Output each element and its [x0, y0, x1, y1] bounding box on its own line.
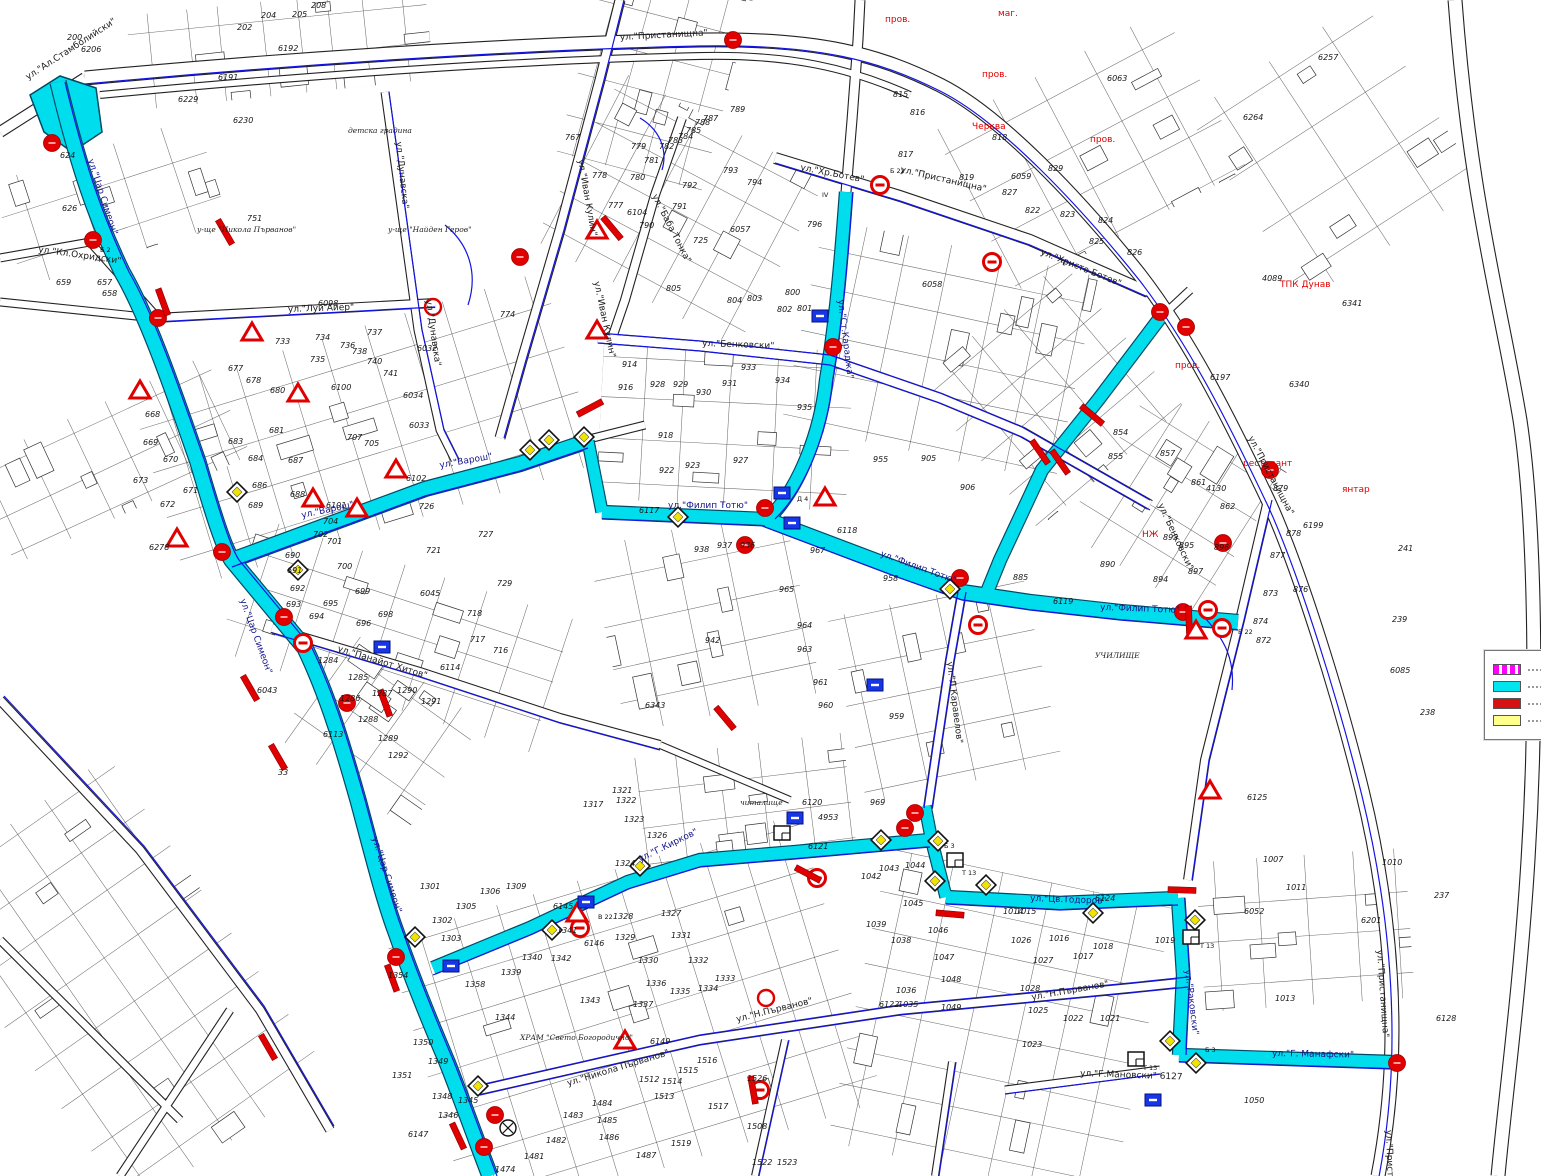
- parcel-number: 890: [1100, 560, 1115, 569]
- parcel-number: 6147: [408, 1130, 429, 1139]
- parcel-number: 1289: [378, 734, 398, 743]
- parcel-number: 1045: [903, 899, 923, 908]
- parcel-number: 1345: [458, 1096, 478, 1105]
- parcel-number: 6201: [1361, 916, 1381, 925]
- hydrant-node-mark: [1183, 326, 1190, 328]
- parcel-number: 1326: [647, 831, 667, 840]
- map-legend: [1484, 650, 1541, 740]
- parcel-number: 1036: [896, 986, 916, 995]
- parcel-number: 1284: [318, 656, 338, 665]
- parcel-number: 1354: [388, 971, 408, 980]
- parcel-number: 725: [693, 236, 708, 245]
- parcel-number: 1026: [1011, 936, 1031, 945]
- parcel-number: 705: [364, 439, 379, 448]
- parcel-number: 827: [1002, 188, 1018, 197]
- fire-hydrant-icon: [374, 641, 390, 653]
- parcel-number: 1301: [420, 882, 440, 891]
- parcel-number: 691: [287, 566, 302, 575]
- parcel-number: 963: [797, 645, 812, 654]
- parcel-number: 1340: [522, 953, 542, 962]
- parcel-number: 6043: [257, 686, 277, 695]
- red-annotation-label: ТПК Дунав: [1279, 280, 1331, 290]
- parcel-number: 6264: [1243, 113, 1263, 122]
- parcel-number: 818: [992, 133, 1007, 142]
- parcel-number: 701: [327, 537, 342, 546]
- parcel-number: 802: [777, 305, 792, 314]
- closed-section-icon: [1200, 602, 1217, 619]
- parcel-number: 777: [608, 201, 624, 210]
- parcel-number: 704: [323, 517, 338, 526]
- parcel-number: 6059: [1011, 172, 1031, 181]
- parcel-number: 672: [160, 500, 175, 509]
- parcel-number: 1484: [592, 1099, 612, 1108]
- parcel-number: 1519: [671, 1139, 691, 1148]
- red-annotation-label: НЖ: [1142, 530, 1159, 540]
- parcel-number: 927: [733, 456, 749, 465]
- parcel-number: 1046: [928, 926, 948, 935]
- parcel-number: 657: [97, 278, 113, 287]
- parcel-number: 6192: [278, 44, 298, 53]
- parcel-number: 1007: [1263, 855, 1284, 864]
- pipeline-casing: [433, 840, 930, 968]
- parcel-number: 692: [290, 584, 305, 593]
- fire-hydrant-icon: [443, 960, 459, 972]
- parcel-number: 885: [1013, 573, 1028, 582]
- parcel-number: 1022: [1063, 1014, 1083, 1023]
- parcel-number: 1288: [358, 715, 378, 724]
- parcel-number: 1513: [654, 1092, 674, 1101]
- parcel-number: 6118: [837, 526, 857, 535]
- parcel-number: 1011: [1286, 883, 1306, 892]
- parcel-number: 4130: [1206, 484, 1226, 493]
- parcel-number: 796: [807, 220, 822, 229]
- parcel-number: 658: [102, 289, 117, 298]
- parcel-number: 626: [62, 204, 77, 213]
- parcel-number: 804: [727, 296, 742, 305]
- street-surface: [0, 940, 180, 1120]
- parcel-number: 862: [1220, 502, 1235, 511]
- parcel-number: 690: [285, 551, 300, 560]
- hydrant-node-mark: [90, 239, 97, 241]
- parcel-number: 6100: [331, 383, 351, 392]
- parcel-number: 829: [1048, 164, 1063, 173]
- parcel-number: 1285: [348, 673, 368, 682]
- parcel-number: 6102: [406, 474, 426, 483]
- parcel-number: 717: [470, 635, 486, 644]
- code-label: Т 13: [961, 869, 976, 877]
- parcel-number: 1290: [397, 686, 417, 695]
- parcel-number: 698: [378, 610, 393, 619]
- parcel-number: 624: [60, 151, 75, 160]
- parcel-number: 800: [785, 288, 800, 297]
- parcel-number: 1023: [1022, 1040, 1042, 1049]
- parcel-number: 1306: [480, 887, 500, 896]
- parcel-number: 1334: [698, 984, 718, 993]
- parcel-number: 6113: [323, 730, 343, 739]
- parcel-number: 683: [228, 437, 243, 446]
- parcel-number: 793: [723, 166, 738, 175]
- parcel-number: 823: [1060, 210, 1075, 219]
- code-label: Б 2: [100, 246, 111, 254]
- fire-hydrant-icon: [784, 517, 800, 529]
- warning-triangle-icon: [288, 384, 308, 401]
- parcel-number: 1522: [752, 1158, 772, 1167]
- parcel-number: 1526: [747, 1074, 767, 1083]
- parcel-number: 6063: [1107, 74, 1127, 83]
- parcel-number: 873: [1263, 589, 1278, 598]
- parcel-number: 1331: [671, 931, 691, 940]
- landmark-label: у-ще "Найден Геров": [387, 225, 472, 234]
- parcel-number: 1015: [1016, 907, 1036, 916]
- parcel-number: 1514: [662, 1077, 682, 1086]
- legend-swatch-red: [1493, 698, 1521, 709]
- parcel-number: 1321: [612, 786, 632, 795]
- parcel-number: 1516: [697, 1056, 717, 1065]
- legend-row: [1493, 661, 1541, 678]
- parcel-number: 1287: [372, 689, 393, 698]
- parcel-number: 751: [247, 214, 262, 223]
- parcel-number: 801: [797, 304, 812, 313]
- parcel-number: 659: [56, 278, 71, 287]
- parcel-number: 737: [367, 328, 383, 337]
- parcel-number: 733: [275, 337, 290, 346]
- parcel-number: 934: [775, 376, 790, 385]
- water-pipe-line: [445, 225, 472, 305]
- parcel-number: 205: [292, 10, 307, 19]
- parcel-number: 1335: [670, 987, 690, 996]
- hydrant-node-mark: [730, 39, 737, 41]
- code-label: Б 3: [1205, 1046, 1216, 1054]
- parcel-number: 1302: [432, 916, 452, 925]
- parcel-number: 238: [1420, 708, 1435, 717]
- parcel-number: 6121: [808, 842, 828, 851]
- parcel-number: 1343: [580, 996, 600, 1005]
- map-canvas[interactable]: 2002022042052086206619261916229623075162…: [0, 0, 1541, 1176]
- street-name-label: ул."Хр.Ботев": [799, 163, 864, 185]
- parcel-number: 1329: [615, 933, 635, 942]
- street-name-label: ул."Бенковски": [1155, 502, 1195, 572]
- parcel-number: 791: [672, 202, 687, 211]
- parcel-number: 961: [813, 678, 828, 687]
- parcel-number: 6343: [645, 701, 665, 710]
- parcel-number: 696: [356, 619, 371, 628]
- fire-hydrant-icon: [578, 896, 594, 908]
- parcel-number: 1010: [1382, 858, 1402, 867]
- parcel-number: 876: [1293, 585, 1308, 594]
- parcel-number: 877: [1270, 551, 1286, 560]
- parcel-number: 960: [818, 701, 833, 710]
- parcel-number: 6197: [1210, 373, 1231, 382]
- parcel-number: 702: [313, 530, 328, 539]
- red-annotation-label: пров.: [1175, 361, 1200, 371]
- parcel-number: 967: [810, 546, 826, 555]
- parcel-number: 1050: [1244, 1096, 1264, 1105]
- parcel-number: 6199: [1303, 521, 1323, 530]
- parcel-number: 1286: [340, 694, 360, 703]
- closed-pipe-bar-icon: [268, 743, 287, 770]
- parcel-number: 964: [797, 621, 812, 630]
- street-name-label: ул."Филип Тотю": [668, 501, 748, 511]
- parcel-number: 1317: [583, 800, 604, 809]
- parcel-number: 1324: [615, 859, 635, 868]
- valve-diamond-icon: [227, 482, 247, 502]
- parcel-number: 1019: [1155, 936, 1175, 945]
- parcel-number: 938: [694, 545, 709, 554]
- parcel-number: 707: [347, 433, 363, 442]
- parcel-number: 1358: [465, 980, 485, 989]
- parcel-number: 781: [644, 156, 659, 165]
- legend-label: [1528, 702, 1541, 705]
- red-annotation-label: пров.: [1090, 135, 1115, 145]
- red-annotation-label: пров.: [982, 70, 1007, 80]
- legend-swatch-cyan: [1493, 681, 1521, 692]
- parcel-number: 1333: [715, 974, 735, 983]
- landmark-label: УЧИЛИЩЕ: [1095, 651, 1140, 660]
- parcel-number: 721: [426, 546, 441, 555]
- fire-hydrant-icon: [787, 812, 803, 824]
- parcel-number: 1292: [388, 751, 408, 760]
- legend-swatch-yellow: [1493, 715, 1521, 726]
- parcel-number: 6125: [1247, 793, 1267, 802]
- parcel-number: 1487: [636, 1151, 657, 1160]
- hydrant-node-mark: [155, 317, 162, 319]
- parcel-number: 942: [705, 636, 720, 645]
- code-label: Д 4: [797, 495, 808, 503]
- code-label: Б 22: [1238, 628, 1253, 636]
- parcel-number: 1330: [638, 956, 658, 965]
- chamber-box-icon: [947, 853, 963, 867]
- parcel-number: 825: [1089, 237, 1104, 246]
- parcel-number: 959: [889, 712, 904, 721]
- parcel-number: 779: [631, 142, 646, 151]
- open-valve-icon: [758, 990, 774, 1006]
- hydrant-node-mark: [481, 1146, 488, 1148]
- parcel-number: 805: [666, 284, 681, 293]
- legend-swatch-magenta-dashed: [1493, 664, 1521, 675]
- parcel-number: 792: [682, 181, 697, 190]
- street-surface: [598, 338, 1150, 505]
- hydrant-node-mark: [1157, 311, 1164, 313]
- parcel-number: 1013: [1275, 994, 1295, 1003]
- parcel-number: 671: [183, 486, 198, 495]
- parcel-number: 1349: [428, 1057, 448, 1066]
- parcel-number: 774: [500, 310, 515, 319]
- parcel-number: 1344: [495, 1013, 515, 1022]
- parcel-number: 680: [270, 386, 285, 395]
- parcel-number: 1049: [941, 1003, 961, 1012]
- parcel-number: 716: [493, 646, 508, 655]
- parcel-number: 794: [747, 178, 762, 187]
- parcel-number: 668: [145, 410, 160, 419]
- parcel-number: 6045: [420, 589, 440, 598]
- parcel-number: 6191: [218, 73, 238, 82]
- red-annotation-label: пров.: [885, 15, 910, 25]
- parcel-number: 1481: [524, 1152, 544, 1161]
- parcel-number: 204: [261, 11, 276, 20]
- fire-hydrant-icon: [1145, 1094, 1161, 1106]
- parcel-number: 1044: [905, 861, 925, 870]
- code-label: Т 13: [1142, 1064, 1157, 1072]
- chamber-box-icon: [1183, 930, 1199, 944]
- parcel-number: 1322: [616, 796, 636, 805]
- code-label: IV: [822, 191, 829, 199]
- parcel-number: 1042: [861, 872, 881, 881]
- hydrant-node-mark: [492, 1114, 499, 1116]
- parcel-number: 914: [622, 360, 637, 369]
- warning-triangle-icon: [130, 381, 150, 398]
- parcel-number: 6033: [409, 421, 429, 430]
- parcel-number: 1323: [624, 815, 644, 824]
- parcel-number: 684: [248, 454, 263, 463]
- parcel-number: 734: [315, 333, 330, 342]
- parcel-number: 1018: [1093, 942, 1113, 951]
- parcel-number: 1291: [421, 697, 441, 706]
- warning-triangle-icon: [815, 488, 835, 505]
- parcel-number: 1332: [688, 956, 708, 965]
- parcel-number: 922: [659, 466, 674, 475]
- pipeline-street: [1178, 898, 1183, 1055]
- parcel-number: 826: [1127, 248, 1142, 257]
- parcel-number: 689: [248, 501, 263, 510]
- parcel-number: 861: [1191, 478, 1206, 487]
- parcel-number: 6119: [1053, 597, 1073, 606]
- closed-pipe-bar-icon: [1168, 887, 1196, 894]
- parcel-number: 1483: [563, 1111, 583, 1120]
- parcel-number: 1305: [456, 902, 476, 911]
- parcel-number: 1027: [1033, 956, 1054, 965]
- chamber-x-icon: [500, 1120, 516, 1136]
- hydrant-node-mark: [902, 827, 909, 829]
- parcel-number: 1515: [678, 1066, 698, 1075]
- parcel-number: 6057: [730, 225, 751, 234]
- parcel-number: 1517: [708, 1102, 729, 1111]
- parcel-number: 6114: [440, 663, 460, 672]
- warning-triangle-icon: [386, 460, 406, 477]
- parcel-number: 735: [310, 355, 325, 364]
- parcel-number: 241: [1398, 544, 1413, 553]
- legend-row: [1493, 712, 1541, 729]
- hydrant-node-mark: [912, 812, 919, 814]
- parcel-number: 872: [1256, 636, 1271, 645]
- parcel-number: 1512: [639, 1075, 659, 1084]
- hydrant-node-mark: [281, 616, 288, 618]
- fire-hydrant-icon: [774, 487, 790, 499]
- parcel-number: 6145: [553, 902, 573, 911]
- warning-triangle-icon: [167, 529, 187, 546]
- parcel-number: 1038: [891, 936, 911, 945]
- landmark-label: ХРАМ "Свето Богородично": [519, 1033, 633, 1042]
- hydrant-node-mark: [830, 346, 837, 348]
- parcel-number: 1303: [441, 934, 461, 943]
- parcel-number: 1039: [866, 920, 886, 929]
- parcel-number: 803: [747, 294, 762, 303]
- parcel-number: 6146: [584, 939, 604, 948]
- parcel-number: 789: [730, 105, 745, 114]
- parcel-number: 1348: [432, 1092, 452, 1101]
- code-label: Т 13: [1199, 942, 1214, 950]
- legend-row: [1493, 678, 1541, 695]
- parcel-number: 906: [960, 483, 975, 492]
- hydrant-node-mark: [957, 577, 964, 579]
- legend-label: [1528, 685, 1541, 688]
- hydrant-node-mark: [49, 142, 56, 144]
- parcel-number: 1342: [551, 954, 571, 963]
- parcel-number: 6034: [403, 391, 423, 400]
- legend-label: [1528, 668, 1541, 671]
- parcel-number: 1043: [879, 864, 899, 873]
- parcel-number: 700: [337, 562, 352, 571]
- landmark-label: читалище: [740, 798, 783, 807]
- parcel-number: 1025: [1028, 1006, 1048, 1015]
- parcel-number: 929: [673, 380, 688, 389]
- parcel-number: 678: [246, 376, 261, 385]
- city-water-network-map[interactable]: 2002022042052086206619261916229623075162…: [0, 0, 1541, 1176]
- parcel-number: 686: [252, 481, 267, 490]
- parcel-number: 239: [1392, 615, 1407, 624]
- parcel-number: 729: [497, 579, 512, 588]
- parcel-number: 878: [1286, 529, 1301, 538]
- closed-section-icon: [984, 254, 1001, 271]
- parcel-number: 669: [143, 438, 158, 447]
- parcel-number: 1351: [392, 1071, 412, 1080]
- code-label: Б 22: [890, 167, 905, 175]
- parcel-number: 822: [1025, 206, 1040, 215]
- parcel-number: 916: [618, 383, 633, 392]
- parcel-number: 4953: [818, 813, 838, 822]
- parcel-number: 1048: [941, 975, 961, 984]
- legend-label: [1528, 719, 1541, 722]
- parcel-number: 931: [722, 379, 737, 388]
- closed-section-icon: [295, 635, 312, 652]
- parcel-number: 788: [695, 118, 710, 127]
- parcel-number: 955: [873, 455, 888, 464]
- parcel-number: 1047: [934, 953, 955, 962]
- code-label: Б 3: [944, 842, 955, 850]
- parcel-number: 1482: [546, 1136, 566, 1145]
- parcel-number: 969: [870, 798, 885, 807]
- parcel-number: 1035: [898, 1000, 918, 1009]
- street-casing: [598, 338, 1150, 505]
- parcel-number: 6230: [233, 116, 253, 125]
- parcel-number: 237: [1434, 891, 1450, 900]
- landmark-label: детска градина: [348, 126, 412, 135]
- parcel-number: 670: [163, 455, 178, 464]
- parcel-number: 1017: [1073, 952, 1094, 961]
- parcel-number: 695: [323, 599, 338, 608]
- parcel-number: 718: [467, 609, 482, 618]
- street-surface: [120, 1010, 230, 1176]
- parcel-number: 6122: [879, 1000, 899, 1009]
- warning-triangle-icon: [242, 323, 262, 340]
- parcel-number: 965: [779, 585, 794, 594]
- street-surface: [755, 1040, 785, 1176]
- parcel-number: 6052: [1244, 907, 1264, 916]
- street-name-label: ул."Луи Айер": [288, 303, 355, 315]
- hydrant-node-mark: [517, 256, 524, 258]
- parcel-number: 1474: [495, 1165, 515, 1174]
- parcel-number: 1327: [661, 909, 682, 918]
- parcel-number: 928: [650, 380, 665, 389]
- parcel-number: 693: [286, 600, 301, 609]
- street-surface: [1455, 0, 1534, 1176]
- parcel-number: 202: [237, 23, 252, 32]
- parcel-number: 6340: [1289, 380, 1309, 389]
- street-name-label: ул."Пристанищна": [1383, 1130, 1396, 1176]
- chamber-box-icon: [1128, 1052, 1144, 1066]
- parcel-number: 918: [658, 431, 673, 440]
- parcel-number: 681: [269, 426, 284, 435]
- parcel-number: 930: [696, 388, 711, 397]
